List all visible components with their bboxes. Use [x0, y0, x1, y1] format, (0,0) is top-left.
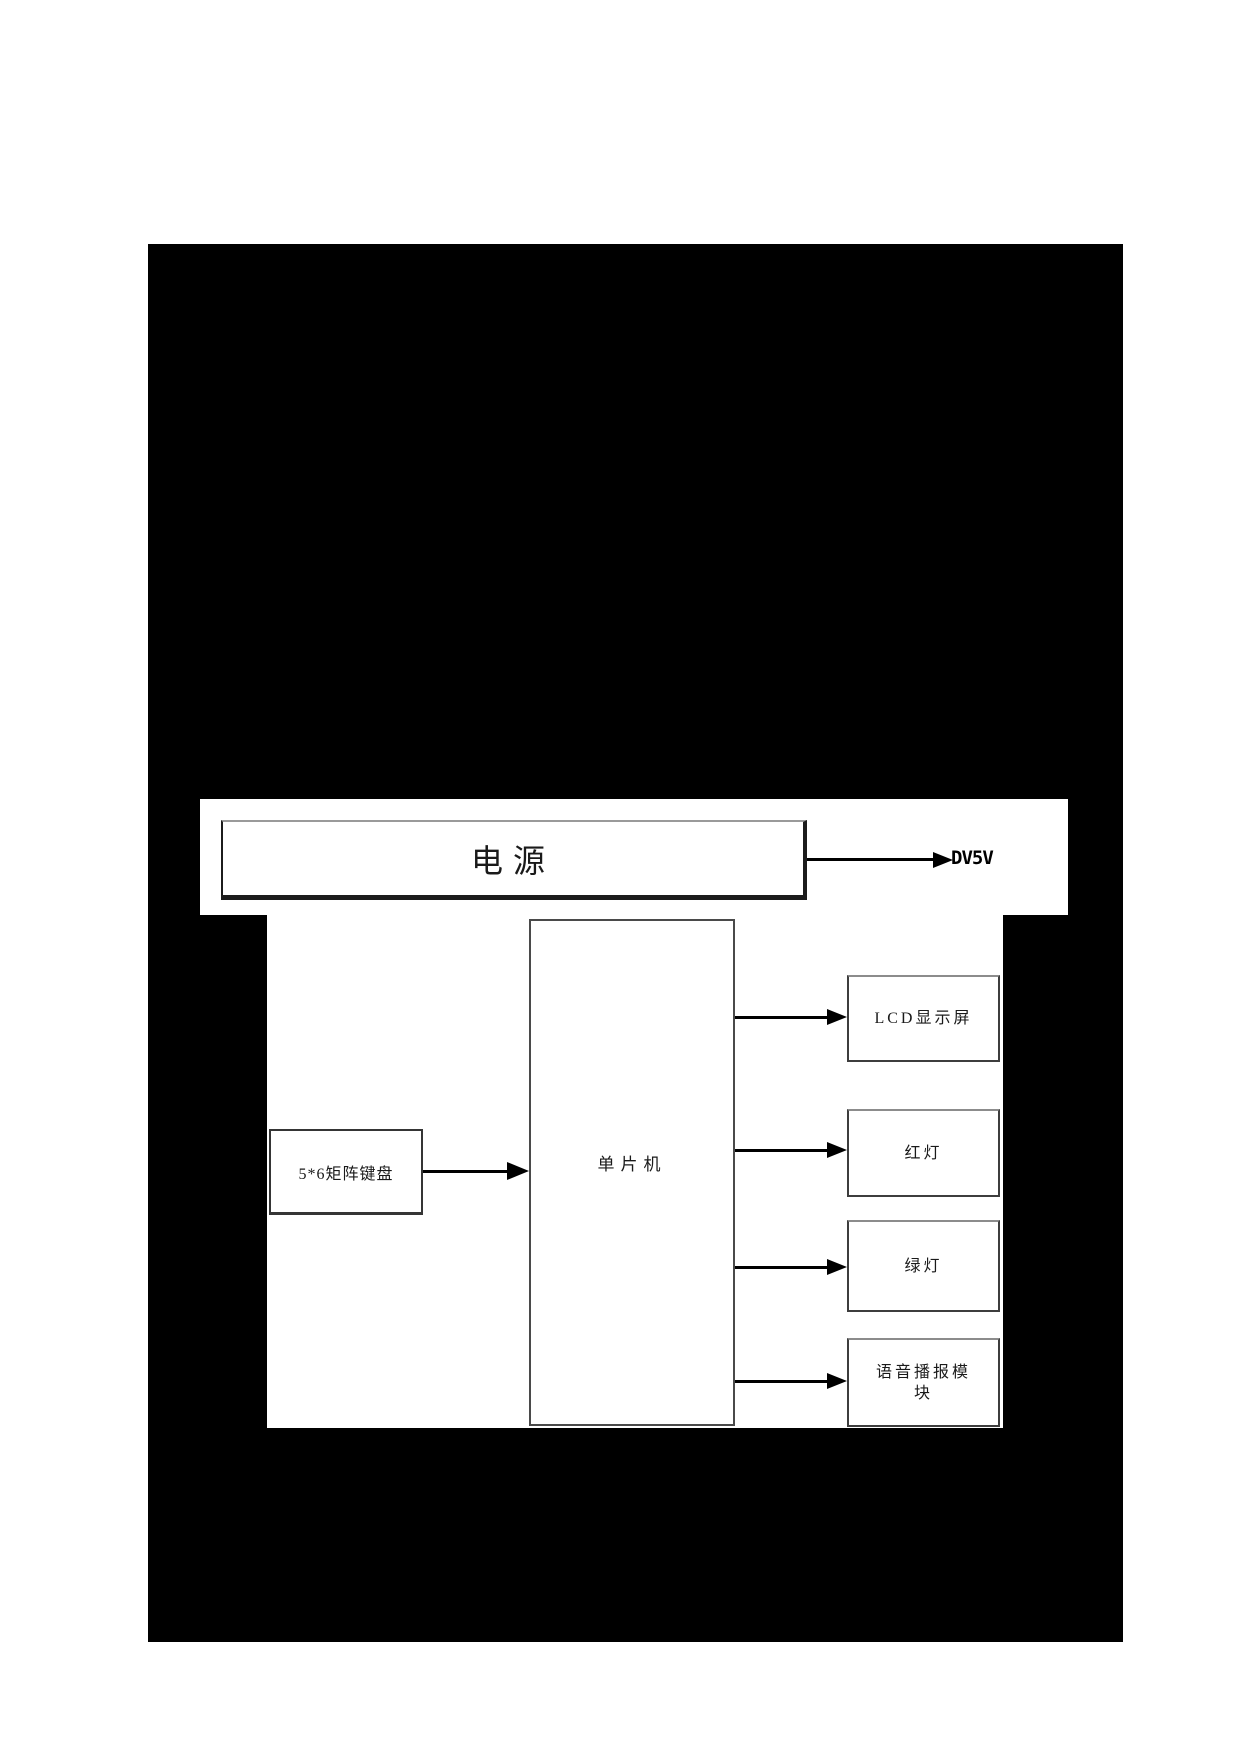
- lcd-display-label: LCD显示屏: [874, 1008, 972, 1029]
- red-light-box: 红灯: [847, 1109, 1000, 1197]
- document-page: 电源 DV5V 5*6矩阵键盘 单片机 LCD显示屏 红灯 绿灯 语音播报模块: [0, 0, 1240, 1754]
- voice-module-box: 语音播报模块: [847, 1338, 1000, 1427]
- red-light-label: 红灯: [904, 1143, 942, 1164]
- lcd-arrowhead-icon: [827, 1009, 847, 1025]
- lcd-arrow-line: [735, 1016, 829, 1019]
- mcu-box: 单片机: [529, 919, 735, 1426]
- voice-module-arrow-line: [735, 1380, 829, 1383]
- green-light-arrow-line: [735, 1266, 829, 1269]
- power-arrowhead-icon: [933, 852, 953, 868]
- lcd-display-box: LCD显示屏: [847, 975, 1000, 1062]
- keyboard-box: 5*6矩阵键盘: [269, 1129, 423, 1215]
- power-arrow-line: [807, 858, 937, 861]
- power-supply-label: 电源: [471, 836, 555, 882]
- green-light-box: 绿灯: [847, 1220, 1000, 1312]
- voice-module-arrowhead-icon: [827, 1373, 847, 1389]
- green-light-label: 绿灯: [904, 1256, 942, 1277]
- red-light-arrow-line: [735, 1149, 829, 1152]
- mcu-label: 单片机: [598, 1150, 667, 1175]
- power-supply-box: 电源: [221, 820, 807, 900]
- power-output-label: DV5V: [951, 847, 993, 869]
- red-light-arrowhead-icon: [827, 1142, 847, 1158]
- keyboard-arrow-line: [423, 1170, 513, 1173]
- voice-module-label: 语音播报模块: [871, 1362, 977, 1404]
- keyboard-label: 5*6矩阵键盘: [298, 1160, 393, 1184]
- keyboard-arrowhead-icon: [507, 1162, 529, 1180]
- green-light-arrowhead-icon: [827, 1259, 847, 1275]
